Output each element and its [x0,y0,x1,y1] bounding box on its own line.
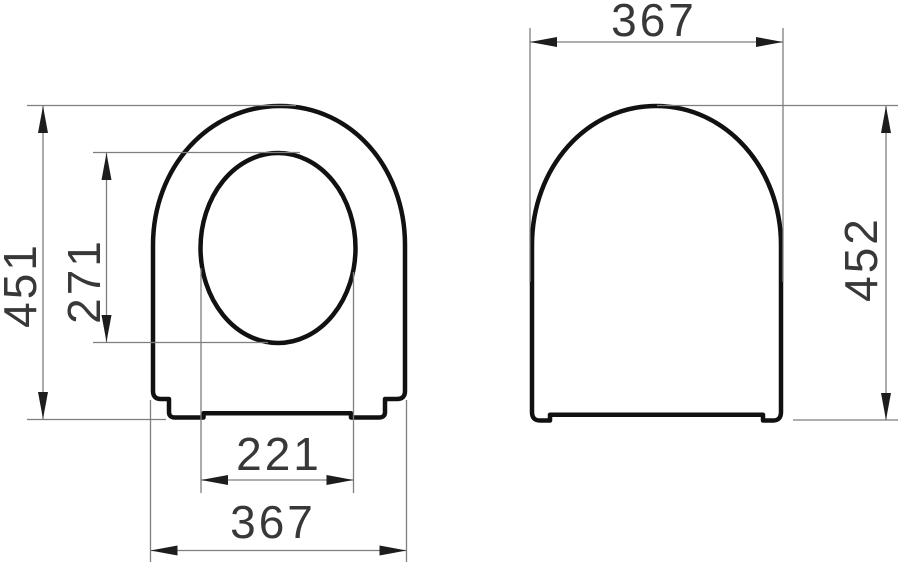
dim-front-inner-width: 221 [201,268,354,493]
arrowhead-up [881,106,891,133]
dim-front-inner-height: 271 [58,153,300,343]
drawing-canvas: 451 271 221 [0,0,900,564]
arrowhead-down [881,393,891,420]
dim-side-overall-height: 452 [657,106,898,421]
front-view: 451 271 221 [0,106,407,563]
dim-label-overall-height: 452 [835,216,887,302]
arrowhead-left [201,475,228,485]
dim-side-overall-width: 367 [530,0,783,282]
side-view: 367 452 [530,0,898,421]
seat-inner-ring [201,153,356,343]
arrowhead-right [380,546,407,556]
arrowhead-left [151,546,178,556]
dim-label-overall-height: 451 [0,242,46,328]
arrowhead-up [102,153,112,180]
arrowhead-right [327,475,354,485]
technical-drawing: 451 271 221 [0,0,900,564]
dim-label-inner-width: 221 [236,428,322,480]
arrowhead-left [530,37,557,47]
dim-label-inner-height: 271 [58,238,110,324]
lid-outer-contour [532,106,781,421]
dim-front-overall-width: 367 [151,400,407,562]
dim-label-overall-width: 367 [611,0,697,46]
arrowhead-up [38,106,48,133]
dim-label-overall-width: 367 [230,496,316,548]
arrowhead-down [38,392,48,419]
arrowhead-right [756,37,783,47]
